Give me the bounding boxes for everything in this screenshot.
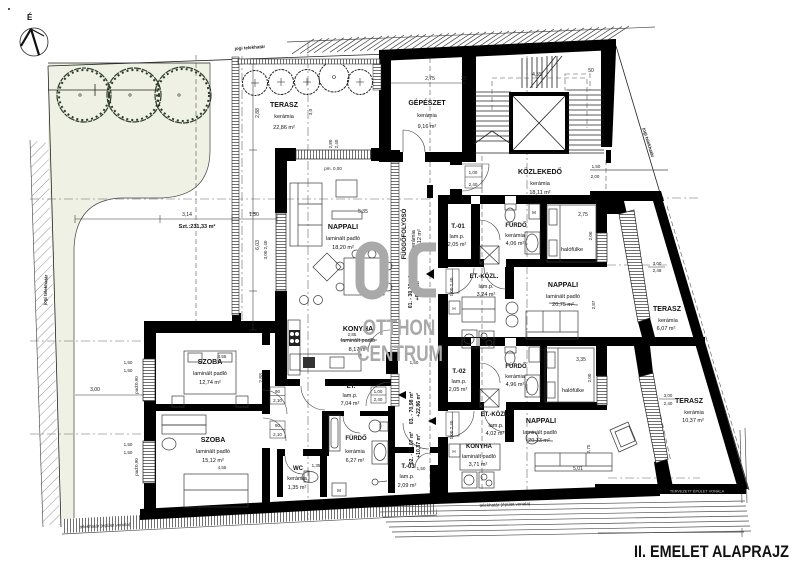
svg-text:M: M (532, 210, 536, 215)
svg-text:2,40: 2,40 (469, 182, 478, 187)
svg-text:6,03: 6,03 (255, 240, 261, 250)
svg-text:ET.-KÖZL.: ET.-KÖZL. (481, 411, 510, 418)
svg-text:1,00: 1,00 (374, 389, 383, 394)
svg-text:3,00: 3,00 (90, 387, 100, 393)
svg-text:4,96 m²: 4,96 m² (506, 382, 525, 388)
svg-text:1,00: 1,00 (469, 170, 478, 175)
svg-text:3,14: 3,14 (182, 212, 192, 218)
svg-text:7,04 m²: 7,04 m² (341, 401, 360, 407)
svg-text:6,27 m²: 6,27 m² (346, 458, 365, 464)
svg-text:2,09 m²: 2,09 m² (398, 483, 417, 489)
svg-text:3,71 m²: 3,71 m² (469, 462, 488, 468)
svg-text:2,87: 2,87 (591, 300, 596, 309)
svg-text:pad:0,90: pad:0,90 (134, 458, 139, 476)
svg-text:laminált padló: laminált padló (546, 294, 580, 300)
svg-text:+10,37 m²: +10,37 m² (416, 434, 422, 458)
svg-text:2,05 m²: 2,05 m² (448, 242, 467, 248)
svg-text:6,07 m²: 6,07 m² (657, 326, 676, 332)
svg-text:CENTRUM: CENTRUM (357, 342, 443, 367)
svg-text:TERASZ: TERASZ (270, 102, 299, 109)
svg-text:laminált padló: laminált padló (196, 449, 230, 455)
svg-text:kerámia: kerámia (505, 233, 526, 239)
svg-text:ET.-KÖZL.: ET.-KÖZL. (470, 273, 499, 280)
svg-text:4,02 m²: 4,02 m² (486, 431, 505, 437)
svg-text:KONYHA: KONYHA (466, 444, 493, 450)
svg-text:22,86 m²: 22,86 m² (273, 125, 295, 131)
svg-text:TERASZ: TERASZ (653, 306, 682, 313)
svg-text:10,37 m²: 10,37 m² (682, 418, 704, 424)
svg-text:kerámia: kerámia (345, 449, 366, 455)
svg-text:2,40: 2,40 (374, 397, 383, 402)
svg-text:2,00: 2,00 (587, 373, 592, 382)
svg-text:laminált padló: laminált padló (523, 430, 557, 436)
svg-text:2,48: 2,48 (653, 268, 662, 273)
svg-text:1,50: 1,50 (124, 442, 133, 447)
svg-text:3,35: 3,35 (576, 357, 586, 363)
svg-text:TERVEZETT ÉPÜLET VONALA: TERVEZETT ÉPÜLET VONALA (670, 489, 725, 494)
svg-text:FÜRDŐ: FÜRDŐ (505, 363, 527, 370)
svg-text:2,00: 2,00 (588, 231, 593, 240)
svg-text:Szt.:231,33 m²: Szt.:231,33 m² (179, 223, 216, 230)
svg-text:WC: WC (293, 466, 304, 472)
svg-text:+22,86 m²: +22,86 m² (416, 393, 422, 417)
svg-text:SZOBA: SZOBA (201, 437, 226, 444)
svg-text:2,75: 2,75 (578, 212, 588, 218)
svg-text:3,00 2,40: 3,00 2,40 (263, 240, 268, 259)
svg-text:90: 90 (275, 423, 281, 428)
svg-text:halófülke: halófülke (561, 247, 583, 253)
svg-text:18,11 m²: 18,11 m² (529, 190, 550, 196)
svg-text:2,40: 2,40 (334, 139, 339, 148)
svg-text:laminált padló: laminált padló (326, 236, 360, 242)
svg-text:1,35 m²: 1,35 m² (288, 485, 307, 491)
svg-text:lam.p.: lam.p. (479, 284, 494, 290)
svg-text:lam.p.: lam.p. (450, 234, 465, 240)
svg-text:M: M (337, 488, 341, 493)
svg-text:2,88: 2,88 (259, 373, 265, 383)
svg-text:laminált padló: laminált padló (193, 371, 227, 377)
svg-text:NAPPALI: NAPPALI (526, 418, 556, 425)
svg-text:2,75: 2,75 (425, 76, 435, 82)
svg-text:kerámia: kerámia (530, 181, 551, 187)
svg-text:T.-02: T.-02 (452, 369, 466, 375)
svg-text:18,20 m²: 18,20 m² (332, 245, 354, 251)
svg-text:25: 25 (461, 76, 467, 82)
svg-text:2,40: 2,40 (664, 401, 673, 406)
svg-text:KÖZLEKEDŐ: KÖZLEKEDŐ (518, 167, 563, 176)
svg-text:pm. 0,00: pm. 0,00 (324, 166, 342, 171)
svg-text:4,06 m²: 4,06 m² (506, 241, 525, 247)
svg-text:1,50: 1,50 (592, 164, 601, 169)
svg-text:kerámia: kerámia (658, 318, 679, 324)
svg-text:2,05 m²: 2,05 m² (449, 387, 468, 393)
svg-text:lam.p.: lam.p. (489, 423, 504, 429)
svg-text:2,10: 2,10 (273, 398, 282, 403)
svg-text:H: H (452, 306, 455, 311)
svg-text:02. - 34,07 m²: 02. - 34,07 m² (409, 431, 415, 464)
svg-text:kerámia: kerámia (684, 410, 705, 416)
svg-text:kerámia: kerámia (274, 114, 295, 120)
svg-text:1,35: 1,35 (312, 463, 321, 468)
svg-text:12,74 m²: 12,74 m² (199, 380, 221, 386)
svg-text:50: 50 (588, 68, 594, 74)
svg-text:15,12 m²: 15,12 m² (202, 458, 224, 464)
svg-text:OTTHON: OTTHON (363, 316, 435, 341)
svg-text:4,55: 4,55 (218, 465, 227, 470)
svg-text:3,00: 3,00 (664, 393, 673, 398)
svg-text:2,88: 2,88 (255, 108, 261, 118)
svg-text:5,35: 5,35 (358, 209, 368, 215)
svg-text:lam.p.: lam.p. (400, 474, 415, 480)
svg-text:2,10: 2,10 (273, 432, 282, 437)
svg-text:NAPPALI: NAPPALI (548, 282, 578, 289)
svg-text:3,0: 3,0 (308, 108, 313, 115)
svg-text:03. - 70,98 m²: 03. - 70,98 m² (409, 391, 415, 424)
svg-text:FÜRDŐ: FÜRDŐ (505, 222, 527, 229)
svg-text:kerámia: kerámia (287, 476, 308, 482)
svg-text:É: É (27, 13, 33, 22)
svg-text:1,50: 1,50 (124, 450, 133, 455)
svg-text:II. EMELET ALAPRAJZ: II. EMELET ALAPRAJZ (634, 543, 790, 561)
svg-text:GÉPÉSZET: GÉPÉSZET (408, 98, 446, 107)
svg-text:2,00: 2,00 (591, 174, 600, 179)
svg-text:3,24 m²: 3,24 m² (477, 292, 496, 298)
svg-text:9,16 m²: 9,16 m² (418, 124, 437, 130)
svg-text:SZOBA: SZOBA (198, 359, 223, 366)
svg-text:5,01: 5,01 (573, 466, 583, 472)
svg-text:halófülke: halófülke (562, 388, 584, 394)
svg-text:1,50: 1,50 (124, 360, 133, 365)
svg-text:1,00 2,40: 1,00 2,40 (449, 277, 454, 296)
svg-text:NAPPALI: NAPPALI (328, 224, 358, 231)
svg-text:kerámia: kerámia (417, 113, 438, 119)
svg-text:1,50: 1,50 (417, 466, 426, 471)
svg-text:1,50: 1,50 (124, 368, 133, 373)
svg-text:FÜGGŐFOLYOSÓ: FÜGGŐFOLYOSÓ (400, 208, 408, 259)
svg-text:3,00: 3,00 (653, 261, 662, 266)
svg-text:FÜRDŐ: FÜRDŐ (345, 435, 367, 442)
svg-text:20,75 m²: 20,75 m² (552, 302, 574, 308)
svg-text:T.-01: T.-01 (451, 224, 465, 230)
svg-text:90: 90 (275, 389, 281, 394)
svg-text:2,80: 2,80 (328, 139, 333, 148)
svg-text:lam.p.: lam.p. (452, 379, 467, 385)
svg-text:pad:0,90: pad:0,90 (134, 376, 139, 394)
svg-text:kerámia: kerámia (505, 374, 526, 380)
svg-text:4,55: 4,55 (532, 72, 542, 78)
svg-text:2,75: 2,75 (586, 444, 591, 453)
svg-text:lam.p.: lam.p. (343, 393, 358, 399)
svg-text:ET.: ET. (347, 384, 356, 390)
svg-text:laminált padló: laminált padló (462, 454, 496, 460)
svg-text:T.-03: T.-03 (401, 464, 415, 470)
svg-text:1,00 2,40: 1,00 2,40 (449, 420, 454, 439)
svg-text:H: H (452, 449, 455, 454)
svg-text:TERASZ: TERASZ (675, 398, 704, 405)
